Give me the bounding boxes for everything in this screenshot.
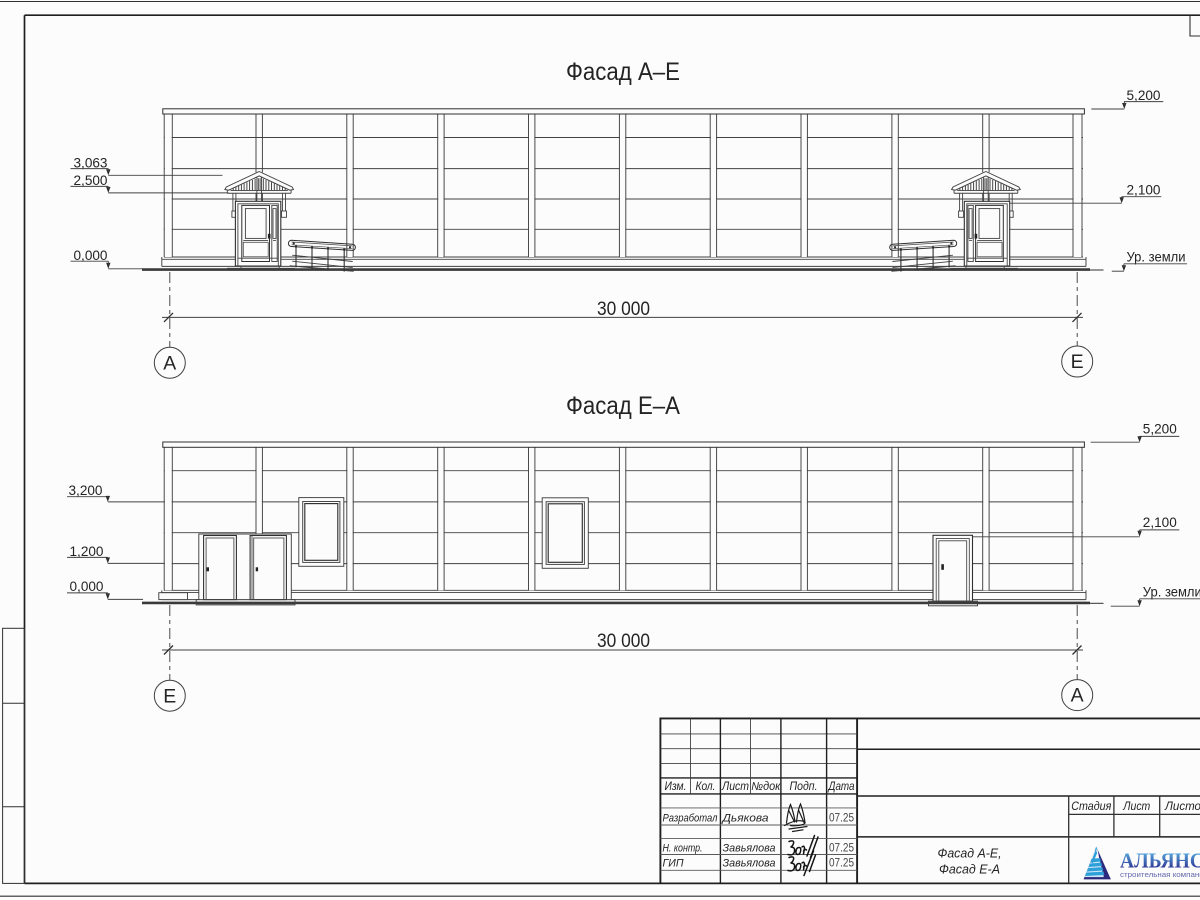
svg-text:5,200: 5,200 xyxy=(1143,422,1177,437)
svg-text:Завьялова: Завьялова xyxy=(723,843,776,855)
svg-text:2,100: 2,100 xyxy=(1143,515,1177,530)
svg-text:Завьялова: Завьялова xyxy=(723,858,776,870)
svg-text:ГИП: ГИП xyxy=(663,858,684,870)
svg-text:Дата: Дата xyxy=(827,781,855,793)
svg-text:строительная компания: строительная компания xyxy=(1120,870,1200,879)
svg-text:А: А xyxy=(163,353,176,374)
svg-text:А: А xyxy=(1071,686,1084,707)
svg-text:Е: Е xyxy=(1071,352,1084,373)
svg-text:№док: №док xyxy=(751,781,781,793)
svg-text:07.25: 07.25 xyxy=(829,858,854,870)
svg-text:Листов: Листов xyxy=(1164,801,1200,813)
svg-text:1,200: 1,200 xyxy=(70,544,104,559)
svg-text:Дьякова: Дьякова xyxy=(721,813,768,825)
svg-text:Лист: Лист xyxy=(1122,801,1150,813)
svg-text:Е: Е xyxy=(163,686,176,707)
svg-text:Подп.: Подп. xyxy=(790,781,818,793)
svg-text:Фасад А–Е: Фасад А–Е xyxy=(566,58,680,86)
svg-text:Разработал: Разработал xyxy=(663,813,718,825)
svg-text:3,200: 3,200 xyxy=(69,483,103,498)
svg-text:Кол.: Кол. xyxy=(696,781,716,793)
svg-text:0,000: 0,000 xyxy=(74,248,108,263)
svg-text:07.25: 07.25 xyxy=(829,843,854,855)
svg-text:Фасад А-Е,: Фасад А-Е, xyxy=(938,846,1002,861)
svg-text:Ур. земли: Ур. земли xyxy=(1143,584,1200,599)
svg-text:Фасад Е–А: Фасад Е–А xyxy=(566,392,680,420)
svg-text:07.25: 07.25 xyxy=(829,813,854,825)
svg-text:Лист: Лист xyxy=(721,781,749,793)
svg-text:Н. контр.: Н. контр. xyxy=(663,843,703,855)
svg-text:2,500: 2,500 xyxy=(74,173,108,188)
svg-text:0,000: 0,000 xyxy=(70,579,104,594)
svg-text:Изм.: Изм. xyxy=(665,781,687,793)
svg-text:Фасад Е-А: Фасад Е-А xyxy=(939,862,1000,877)
svg-text:30 000: 30 000 xyxy=(597,298,650,320)
svg-text:Стадия: Стадия xyxy=(1071,801,1111,813)
svg-text:2,100: 2,100 xyxy=(1127,182,1161,197)
svg-text:3,063: 3,063 xyxy=(74,155,108,170)
svg-text:30 000: 30 000 xyxy=(597,630,650,652)
svg-text:Ур. земли: Ур. земли xyxy=(1127,250,1186,265)
svg-text:5,200: 5,200 xyxy=(1127,88,1161,103)
